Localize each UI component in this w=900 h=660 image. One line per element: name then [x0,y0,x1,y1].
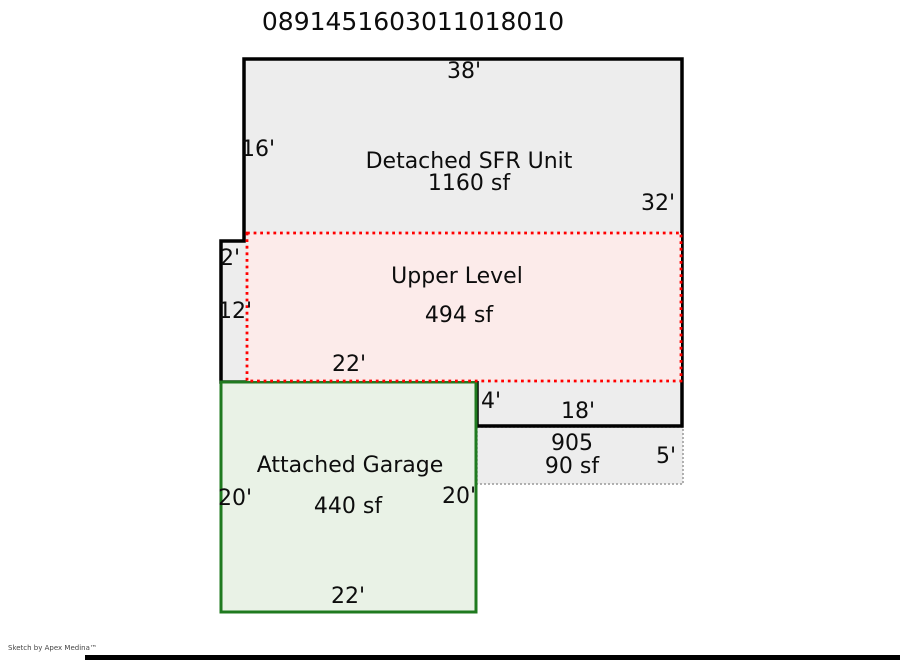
parcel-number-title: 0891451603011018010 [262,9,564,35]
apex-watermark: Sketch by Apex Medina™ [8,645,97,652]
porch-code-label: 905 [551,432,593,455]
dim-step: 2' [220,247,240,270]
upper-level-name-label: Upper Level [391,265,523,288]
dim-jog: 4' [481,390,501,413]
dim-sfr-right: 32' [641,192,675,215]
bottom-edge-bar [85,655,900,660]
sfr-area-label: 1160 sf [428,172,510,195]
garage-name-label: Attached Garage [257,454,443,477]
floor-plan-drawing [0,0,900,660]
dim-garage-left: 20' [218,487,252,510]
dim-garage-bottom: 22' [331,585,365,608]
dim-porch-right: 5' [656,445,676,468]
porch-area-label: 90 sf [545,455,599,478]
dim-sfr-bottom: 22' [332,353,366,376]
dim-sfr-left-upper: 16' [241,138,275,161]
sfr-name-label: Detached SFR Unit [366,150,573,173]
garage-area-label: 440 sf [314,495,382,518]
sketch-canvas: 0891451603011018010 38' 16' Detached SFR… [0,0,900,660]
dim-sfr-left-lower: 12' [218,300,252,323]
dim-sfr-top: 38' [447,60,481,83]
dim-porch-top: 18' [561,400,595,423]
dim-garage-right: 20' [442,485,476,508]
upper-level-area-label: 494 sf [425,304,493,327]
